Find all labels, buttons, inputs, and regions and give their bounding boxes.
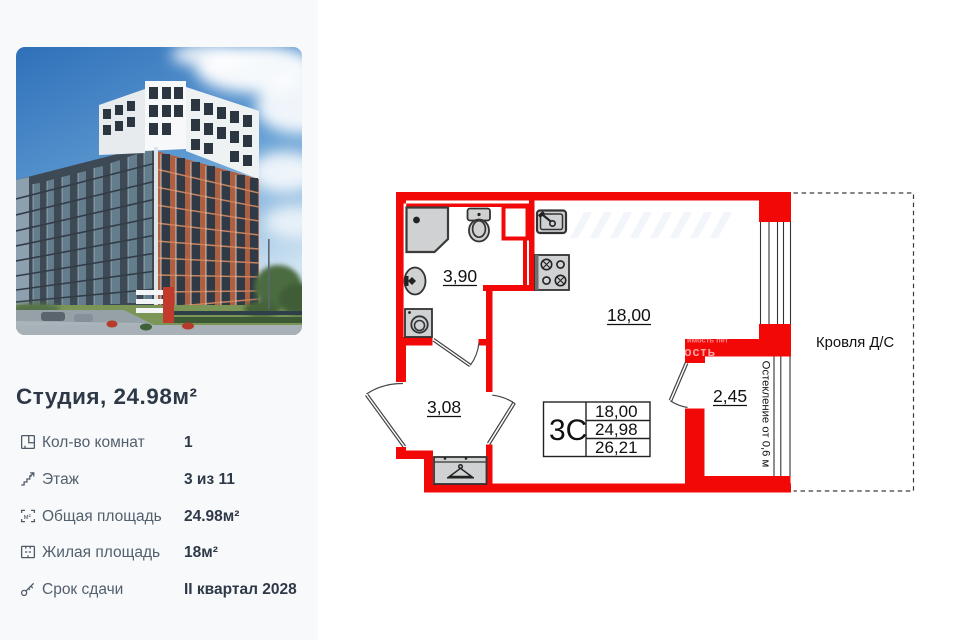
svg-text:имость пет: имость пет [687,336,729,345]
svg-text:2,45: 2,45 [713,386,747,406]
svg-text:3С: 3С [549,414,587,447]
svg-text:18,00: 18,00 [607,305,651,325]
svg-text:ость: ость [684,345,716,359]
svg-text:Кровля Д/С: Кровля Д/С [816,335,894,351]
svg-text:24,98: 24,98 [595,420,638,439]
svg-text:26,21: 26,21 [595,438,638,457]
svg-text:3,08: 3,08 [427,397,461,417]
svg-text:3,90: 3,90 [443,266,477,286]
svg-text:Остекление от 0,6 м: Остекление от 0,6 м [760,361,772,468]
svg-text:18,00: 18,00 [595,402,638,421]
